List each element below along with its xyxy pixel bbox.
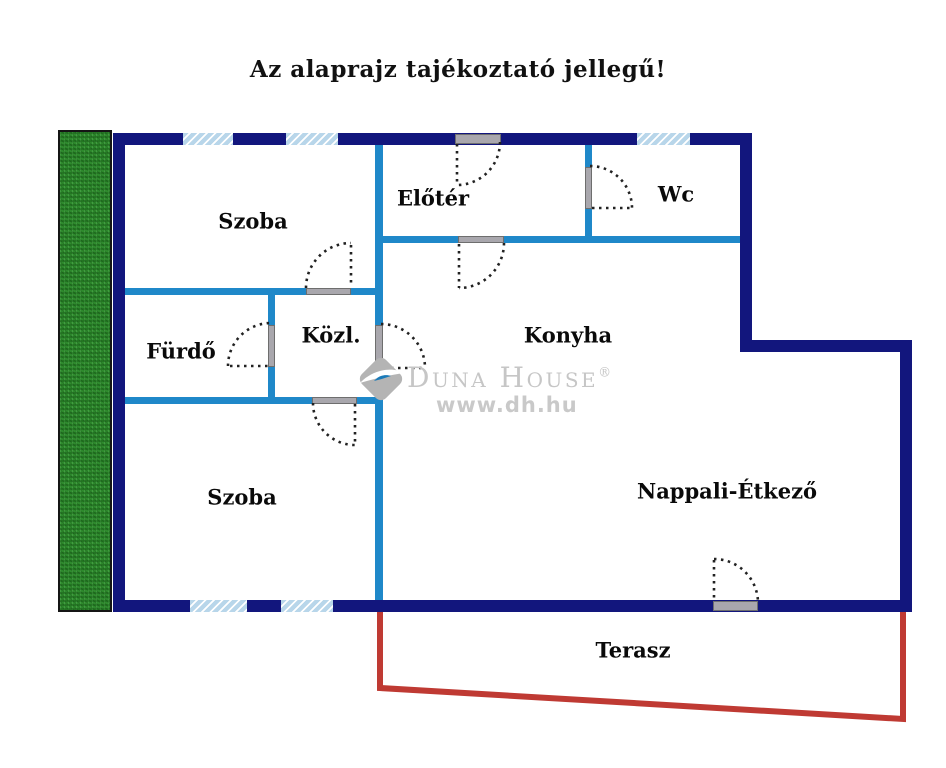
watermark-brand: Duna House® xyxy=(407,361,611,394)
room-label-szoba-bottom: Szoba xyxy=(207,485,276,510)
terrace-outline xyxy=(380,612,903,719)
door-arc-furdo xyxy=(228,323,271,366)
watermark-registered: ® xyxy=(598,366,611,381)
room-label-nappali: Nappali-Étkező xyxy=(637,479,817,504)
duna-house-logo-icon xyxy=(352,350,410,408)
room-label-terasz: Terasz xyxy=(596,638,671,663)
door-arc-entrance xyxy=(457,142,500,185)
room-label-konyha: Konyha xyxy=(524,323,612,348)
watermark-url: www.dh.hu xyxy=(436,393,578,417)
room-label-kozl: Közl. xyxy=(301,323,360,348)
room-label-wc: Wc xyxy=(658,182,694,207)
watermark-brand-text: Duna House xyxy=(407,361,598,394)
room-label-furdo: Fürdő xyxy=(146,339,216,364)
door-arc-terasz xyxy=(714,559,758,603)
door-arc-eloter-wc xyxy=(590,166,632,208)
room-label-szoba-top: Szoba xyxy=(218,209,287,234)
door-arc-eloter-konyha xyxy=(459,243,504,288)
door-arc-szoba-bottom xyxy=(313,403,355,445)
door-arc-szoba-top xyxy=(306,243,351,288)
room-label-eloter: Előtér xyxy=(397,186,469,211)
floor-plan-canvas: Az alaprajz tajékoztató jellegű! xyxy=(0,0,946,768)
